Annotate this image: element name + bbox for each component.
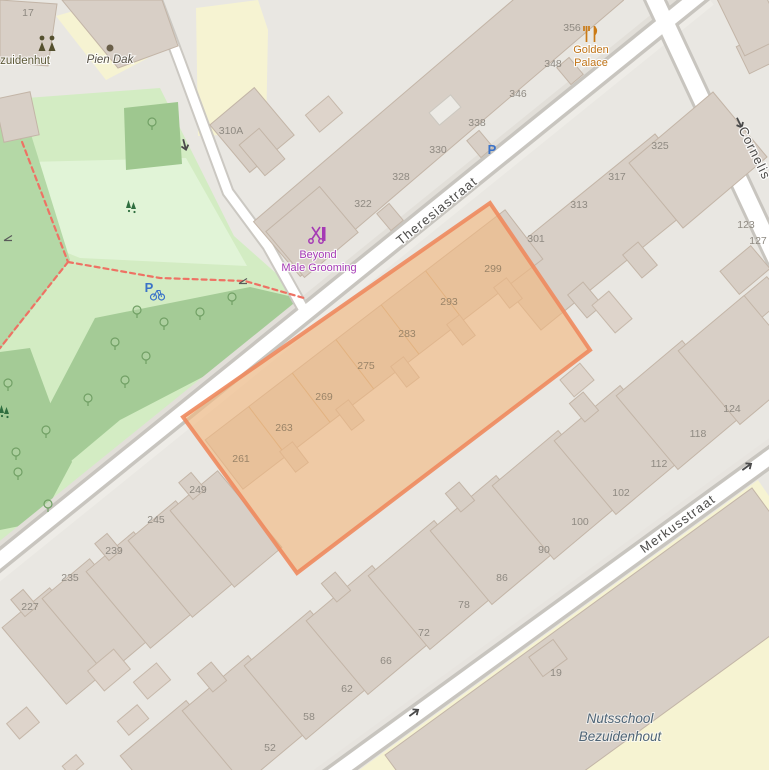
poi-label-pien-dak: Pien Dak	[87, 54, 135, 66]
poi-label-beyond: Male Grooming	[281, 262, 356, 274]
bicycle-parking-p: P	[145, 280, 154, 295]
map-canvas[interactable]: Theresiastraat Merkusstraat Cornelis Gol…	[0, 0, 769, 770]
house-number: 269	[315, 391, 333, 403]
house-number: 62	[341, 683, 353, 695]
parking-icon: P	[488, 142, 497, 157]
house-number: 299	[484, 263, 502, 275]
house-number: 263	[275, 422, 293, 434]
house-number: 78	[458, 599, 470, 611]
poi-label-bezuidenhut: zuidenhut	[0, 55, 51, 67]
house-number: 19	[550, 667, 562, 679]
poi-label-golden-palace: Palace	[574, 57, 608, 69]
house-number: 293	[440, 296, 458, 308]
house-number: 102	[612, 487, 630, 499]
house-number: 72	[418, 627, 430, 639]
poi-dot-icon	[107, 45, 114, 52]
house-number: 245	[147, 514, 165, 526]
house-number: 275	[357, 360, 375, 372]
house-number: 227	[21, 601, 39, 613]
house-number: 283	[398, 328, 416, 340]
house-number: 86	[496, 572, 508, 584]
house-number: 124	[723, 403, 741, 415]
house-number: 90	[538, 544, 550, 556]
house-number: 346	[509, 88, 527, 100]
house-number: 338	[468, 117, 486, 129]
house-number: 112	[651, 458, 668, 470]
house-number: 58	[303, 711, 315, 723]
house-number: 52	[264, 742, 276, 754]
house-number: 313	[570, 199, 588, 211]
house-number: 235	[61, 572, 79, 584]
house-number: 310A	[219, 125, 244, 137]
house-number: 301	[527, 233, 545, 245]
house-number: 123	[737, 219, 755, 231]
map-tiles: Theresiastraat Merkusstraat Cornelis Gol…	[0, 0, 769, 770]
house-number: 322	[354, 198, 372, 210]
house-number: 317	[608, 171, 626, 183]
house-number: 127	[749, 235, 767, 247]
house-number: 328	[392, 171, 410, 183]
house-number: 330	[429, 144, 447, 156]
house-number: 66	[380, 655, 392, 667]
poi-label-golden-palace: Golden	[573, 44, 608, 56]
poi-label-nutsschool: Bezuidenhout	[579, 729, 663, 744]
poi-label-beyond: Beyond	[299, 249, 336, 261]
poi-label-nutsschool: Nutsschool	[587, 711, 655, 726]
house-number: 239	[105, 545, 123, 557]
house-number: 100	[571, 516, 589, 528]
house-number: 348	[544, 58, 562, 70]
house-number: 356	[563, 22, 581, 34]
house-number: 325	[651, 140, 669, 152]
house-number: 249	[189, 484, 207, 496]
house-number: 261	[232, 453, 250, 465]
house-number: 17	[22, 7, 34, 19]
house-number: 118	[690, 428, 707, 440]
